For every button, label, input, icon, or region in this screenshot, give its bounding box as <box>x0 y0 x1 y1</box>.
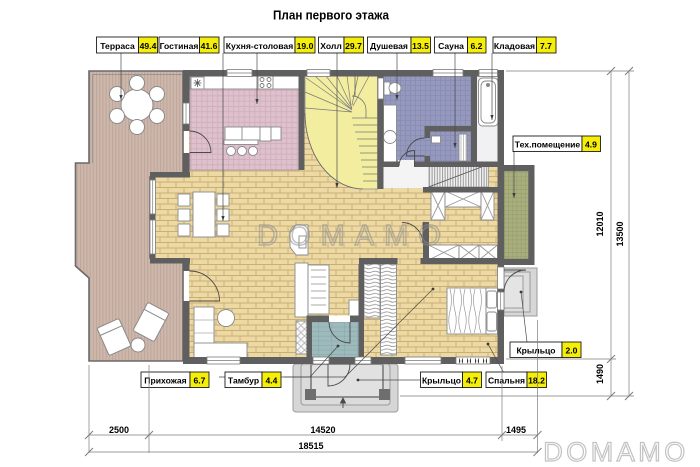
svg-text:4.7: 4.7 <box>466 376 478 386</box>
svg-text:Тамбур: Тамбур <box>228 376 259 386</box>
svg-text:Кухня-столовая: Кухня-столовая <box>226 41 293 51</box>
svg-text:18515: 18515 <box>298 441 323 451</box>
svg-text:Душевая: Душевая <box>370 41 408 51</box>
svg-text:13500: 13500 <box>615 221 625 246</box>
svg-text:7.7: 7.7 <box>540 41 552 51</box>
svg-text:13.5: 13.5 <box>412 41 429 51</box>
svg-text:План первого этажа: План первого этажа <box>273 8 390 23</box>
svg-text:Спальня: Спальня <box>488 376 525 386</box>
svg-text:Тех.помещение: Тех.помещение <box>515 140 581 150</box>
svg-text:4.9: 4.9 <box>585 140 597 150</box>
svg-text:1490: 1490 <box>595 364 605 384</box>
svg-text:Крыльцо: Крыльцо <box>516 346 555 356</box>
svg-text:19.0: 19.0 <box>297 41 314 51</box>
svg-text:1495: 1495 <box>506 425 526 435</box>
svg-text:41.6: 41.6 <box>201 41 218 51</box>
svg-text:Холл: Холл <box>320 41 342 51</box>
svg-text:14520: 14520 <box>310 425 335 435</box>
svg-text:4.4: 4.4 <box>266 376 278 386</box>
svg-text:6.7: 6.7 <box>194 376 206 386</box>
svg-text:Крыльцо: Крыльцо <box>422 376 461 386</box>
svg-text:Прихожая: Прихожая <box>144 376 186 386</box>
svg-text:49.4: 49.4 <box>140 41 157 51</box>
svg-text:2.0: 2.0 <box>566 346 578 356</box>
svg-text:DOMAMO: DOMAMO <box>257 220 451 252</box>
svg-text:Кладовая: Кладовая <box>494 41 535 51</box>
svg-text:18.2: 18.2 <box>528 376 545 386</box>
svg-text:Терраса: Терраса <box>100 41 135 51</box>
svg-text:Сауна: Сауна <box>438 41 464 51</box>
svg-text:Гостиная: Гостиная <box>160 41 199 51</box>
svg-text:6.2: 6.2 <box>471 41 483 51</box>
svg-text:29.7: 29.7 <box>345 41 362 51</box>
svg-text:DOMAMO: DOMAMO <box>543 437 689 467</box>
svg-text:12010: 12010 <box>595 211 605 236</box>
svg-text:2500: 2500 <box>109 425 129 435</box>
